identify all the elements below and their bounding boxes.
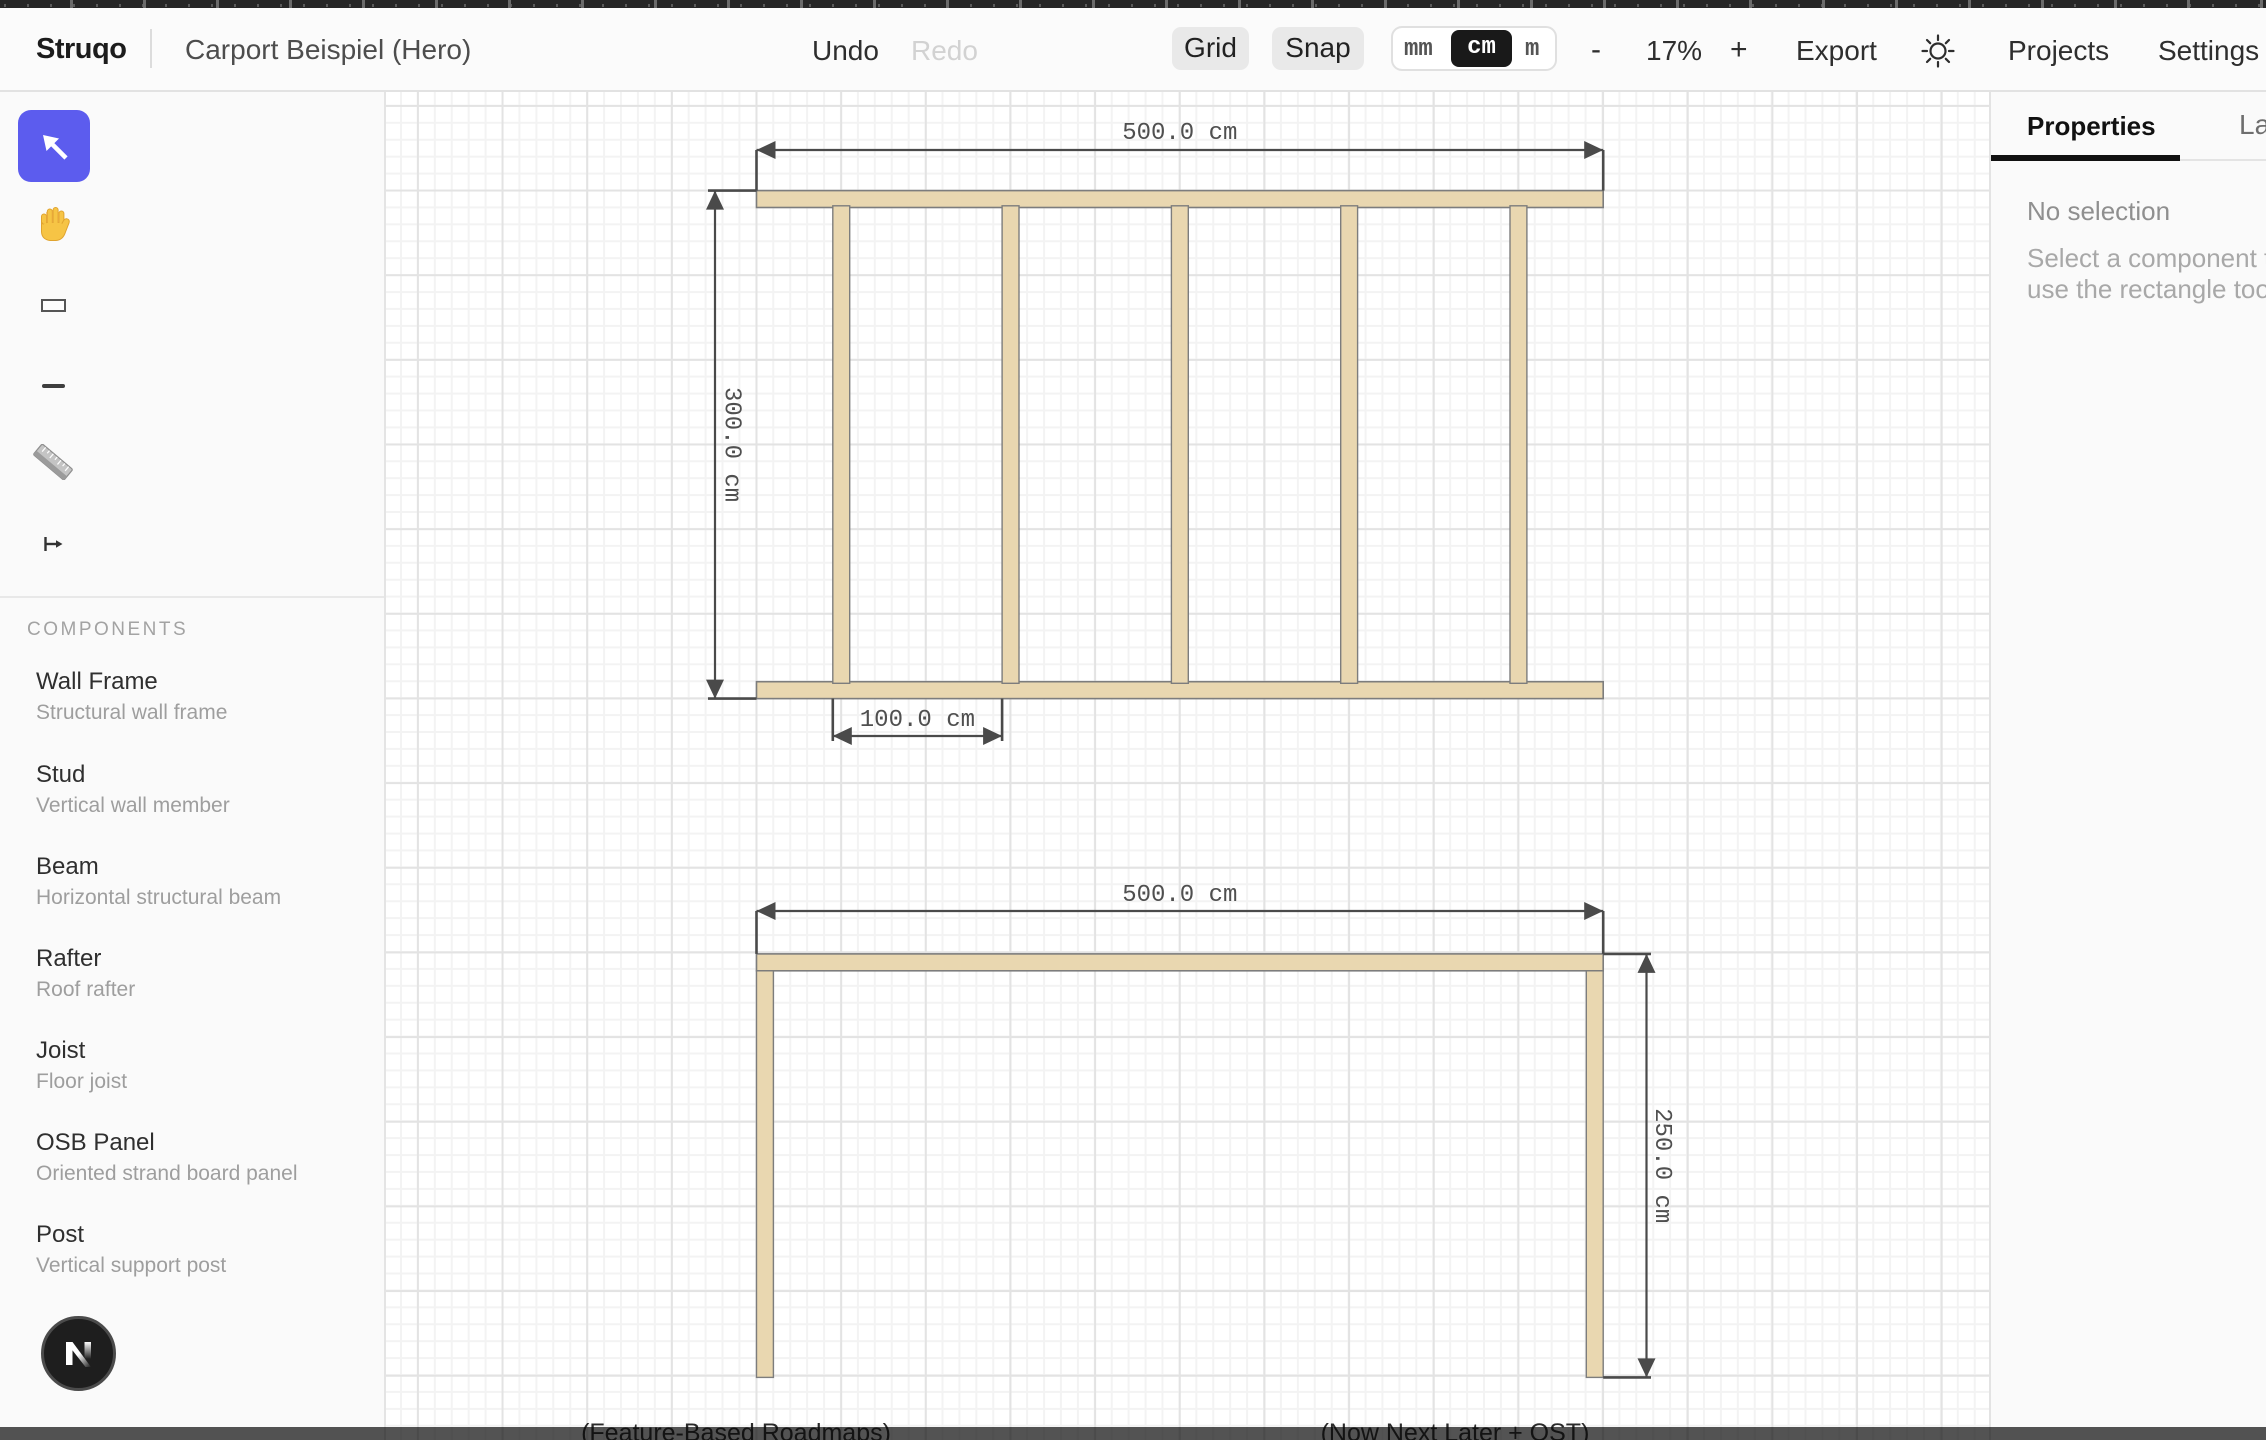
- svg-text:100.0 cm: 100.0 cm: [860, 707, 975, 734]
- svg-text:500.0 cm: 500.0 cm: [1122, 120, 1237, 147]
- svg-text:250.0 cm: 250.0 cm: [1648, 1108, 1675, 1223]
- svg-text:500.0 cm: 500.0 cm: [1122, 882, 1237, 909]
- svg-text:300.0 cm: 300.0 cm: [718, 387, 745, 502]
